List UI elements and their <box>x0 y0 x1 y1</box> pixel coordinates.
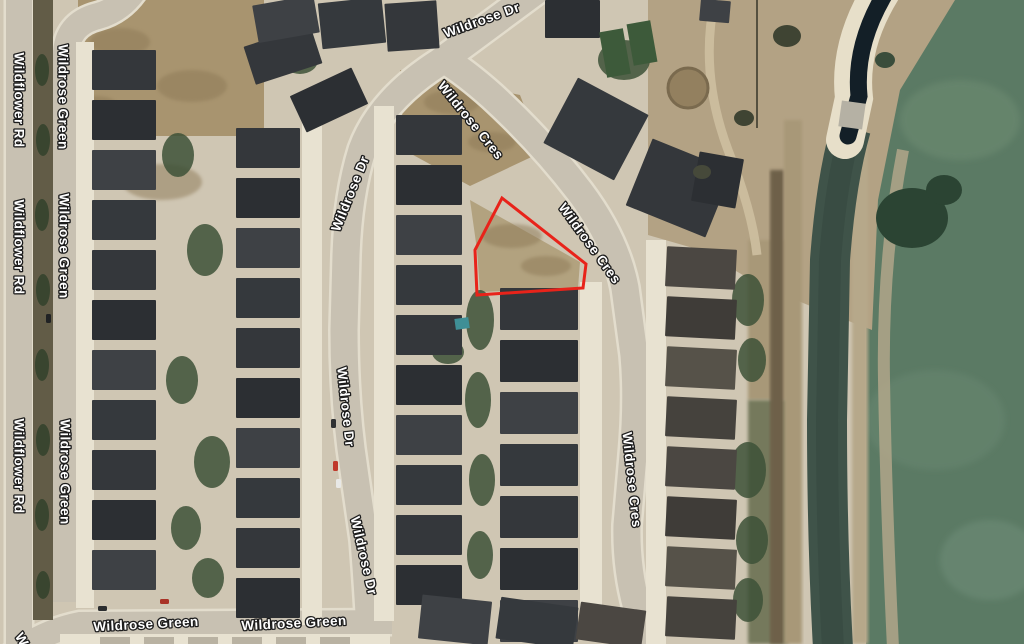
street-label: Wildrose Green <box>55 44 70 149</box>
house-roof <box>236 378 300 418</box>
garage-roof <box>188 637 218 644</box>
street-label: Wildrose Green <box>56 193 71 298</box>
driveway-band <box>646 240 666 644</box>
satellite-map: Wildrose DrWildrose CresWildrose CresWil… <box>0 0 1024 644</box>
garage-roof <box>144 637 174 644</box>
house-roof <box>500 548 578 590</box>
driveway-band <box>374 106 394 621</box>
driveway-band <box>302 120 322 625</box>
backyard-trees <box>171 506 201 550</box>
house-roof <box>92 250 156 290</box>
house-roof <box>92 400 156 440</box>
parked-car <box>333 461 338 471</box>
backyard-trees <box>194 436 230 488</box>
house-roof <box>92 100 156 140</box>
house-roof <box>418 594 492 644</box>
backyard-trees <box>736 516 768 564</box>
rock-garden <box>668 68 708 108</box>
backyard-trees <box>733 578 763 622</box>
house-roof <box>699 0 731 23</box>
backyard-trees <box>187 224 223 276</box>
backyard-trees <box>162 133 194 177</box>
house-roof <box>500 340 578 382</box>
street-label: Wildflower Rd <box>11 199 26 294</box>
house-roof <box>396 215 462 255</box>
house-roof <box>92 550 156 590</box>
house-roof <box>396 265 462 305</box>
parked-car <box>331 419 336 428</box>
house-roof <box>236 428 300 468</box>
weir-structure <box>838 100 865 129</box>
house-roof <box>92 50 156 90</box>
driveway-band <box>580 282 602 612</box>
house-roof <box>500 288 578 330</box>
backyard-trees <box>465 372 491 428</box>
map-viewport[interactable]: Wildrose DrWildrose CresWildrose CresWil… <box>0 0 1024 644</box>
median-layer <box>33 0 53 620</box>
house-roof <box>92 300 156 340</box>
house-roof <box>236 178 300 218</box>
backyard-trees <box>166 356 198 404</box>
house-roof <box>500 444 578 486</box>
house-roof <box>665 396 737 440</box>
house-roof <box>665 546 737 590</box>
house-roof <box>500 392 578 434</box>
parked-car <box>46 314 51 323</box>
house-roof <box>384 0 439 52</box>
house-roof <box>396 115 462 155</box>
house-roof <box>236 328 300 368</box>
house-roof <box>236 128 300 168</box>
parked-car <box>98 606 107 611</box>
house-roof <box>236 478 300 518</box>
backyard-trees <box>738 338 766 382</box>
house-roof <box>92 200 156 240</box>
house-roof <box>691 151 744 208</box>
garage-roof <box>276 637 306 644</box>
house-roof <box>665 246 737 290</box>
house-roof <box>396 415 462 455</box>
house-roof <box>92 450 156 490</box>
house-roof <box>665 346 737 390</box>
house-roof <box>396 315 462 355</box>
tree-cluster <box>693 165 711 179</box>
backyard-trees <box>192 558 224 598</box>
backyard-trees <box>732 274 764 326</box>
tree-cluster <box>926 175 962 205</box>
street-label: Wildrose Green <box>57 419 72 524</box>
house-roof <box>665 596 737 640</box>
house-roof <box>236 278 300 318</box>
tree-cluster <box>734 110 754 126</box>
tree-cluster <box>875 52 895 68</box>
parked-car <box>160 599 169 604</box>
backyard-trees <box>467 531 493 579</box>
house-roof <box>92 150 156 190</box>
backyard-trees <box>469 454 495 506</box>
tree-cluster <box>773 25 801 47</box>
house-roof <box>396 465 462 505</box>
garage-roof <box>232 637 262 644</box>
street-label: Wildflower Rd <box>11 418 26 513</box>
house-roof <box>665 496 737 540</box>
house-roof <box>396 365 462 405</box>
house-roof <box>665 446 737 490</box>
street-label: Wildflower Rd <box>11 52 26 147</box>
driveway-band <box>76 42 94 608</box>
house-roof <box>396 515 462 555</box>
parked-car <box>336 479 341 488</box>
house-roof <box>500 496 578 538</box>
house-roof <box>236 228 300 268</box>
garage-roof <box>100 637 130 644</box>
house-roof <box>236 528 300 568</box>
garage-roof <box>320 637 350 644</box>
house-roof <box>545 0 600 38</box>
house-roof <box>396 165 462 205</box>
house-roof <box>92 350 156 390</box>
backyard-trees <box>466 290 494 350</box>
house-roof <box>665 296 737 340</box>
swimming-pool <box>454 317 469 330</box>
house-roof <box>318 0 386 49</box>
house-roof <box>236 578 300 618</box>
house-roof <box>92 500 156 540</box>
